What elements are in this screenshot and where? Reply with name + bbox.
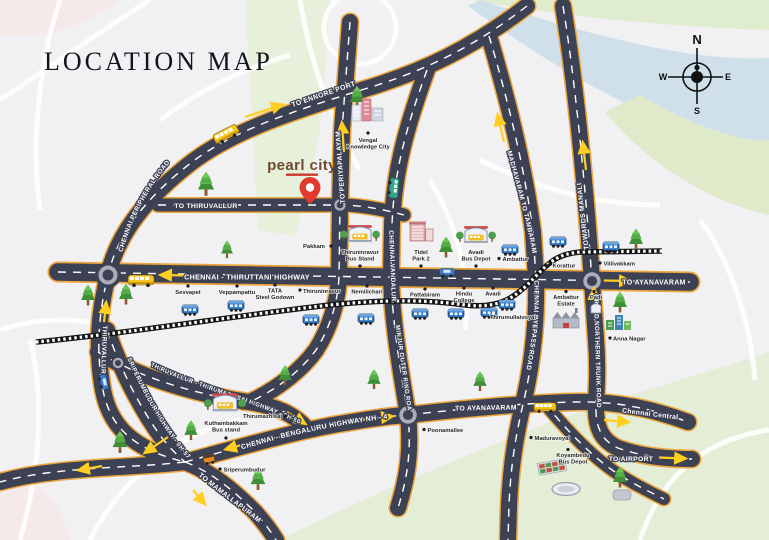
train-icon — [358, 314, 374, 325]
label-pakkam: Pakkam — [303, 244, 325, 250]
compass-east: E — [725, 72, 731, 82]
roundabout-icon — [95, 262, 121, 288]
label-thiruninravur: Thiruninravur — [303, 289, 341, 295]
label-nemilichari: Nemilichari — [351, 290, 383, 296]
label-maduravoyal: Maduravoyal — [535, 436, 571, 442]
label-veppampattu: Veppampattu — [219, 290, 256, 296]
road-label-ayanavaram-north: TO AYANAVARAM — [622, 280, 685, 287]
compass-west: W — [659, 72, 668, 82]
train-icon — [550, 237, 566, 248]
label-korattur: Korattur — [553, 264, 577, 270]
label-thirumullaivoyal: Thirumullaivoyal — [490, 315, 536, 321]
label-poonamallee: Poonamallee — [428, 428, 465, 434]
page-title: LOCATION MAP — [44, 47, 273, 76]
label-anna-nagar: Anna Nagar — [613, 337, 646, 343]
train-icon — [412, 309, 428, 320]
label-villivakkam: Villivakkam — [604, 262, 635, 268]
label-sriperumbudur: Sriperumbudur — [224, 468, 267, 474]
road-label-ayanavaram-south: TO AYANAVARAM — [455, 404, 517, 412]
location-map: TO ENNORE PORT CHENNAI PERIPHERAL ROAD T… — [0, 0, 769, 540]
train-icon — [182, 305, 198, 316]
roundabout-icon — [580, 269, 604, 293]
label-thirumazhisai: Thirumazhisai — [243, 414, 282, 420]
label-padi: Padi — [590, 295, 603, 301]
compass-north: N — [692, 32, 701, 47]
bus-icon — [534, 403, 556, 413]
logo-tagline-bar — [286, 174, 318, 176]
building-icon — [591, 304, 601, 313]
road-label-to-thiruvallur: TO THIRUVALLUR — [174, 203, 237, 210]
road-label-thiruttani: CHENNAI - THIRUTTANI HIGHWAY — [184, 273, 310, 282]
label-ambattur: Ambattur — [503, 257, 530, 263]
train-icon — [448, 309, 464, 320]
train-icon — [228, 301, 244, 312]
label-hindu-college: HinduCollege — [454, 292, 476, 304]
direction-arrow-icon — [659, 458, 684, 459]
compass-south: S — [694, 106, 700, 116]
train-icon — [502, 245, 518, 256]
label-avadi: Avadi — [485, 292, 501, 298]
pearl-city-logo-text: pearl city — [267, 157, 337, 174]
bus-icon — [128, 275, 154, 287]
roundabout-icon — [111, 356, 125, 370]
label-sevvapet: Sevvapet — [175, 290, 201, 296]
label-thiruninravur-bus-stand: ThiruninravurBus Stand — [341, 250, 379, 262]
road-label-airport: TO AIRPORT — [609, 456, 654, 463]
train-icon — [303, 315, 319, 326]
building-icon — [613, 490, 631, 500]
label-pattabiram: Pattabiram — [410, 293, 440, 299]
train-icon — [499, 300, 515, 311]
location-pin-center — [306, 183, 314, 191]
train-icon — [603, 242, 619, 253]
label-tidel-park: TidelPark 2 — [412, 250, 429, 262]
label-koyambedu-bus-depot: KoyambeduBus Depot — [556, 453, 590, 465]
stadium-icon — [552, 483, 580, 496]
